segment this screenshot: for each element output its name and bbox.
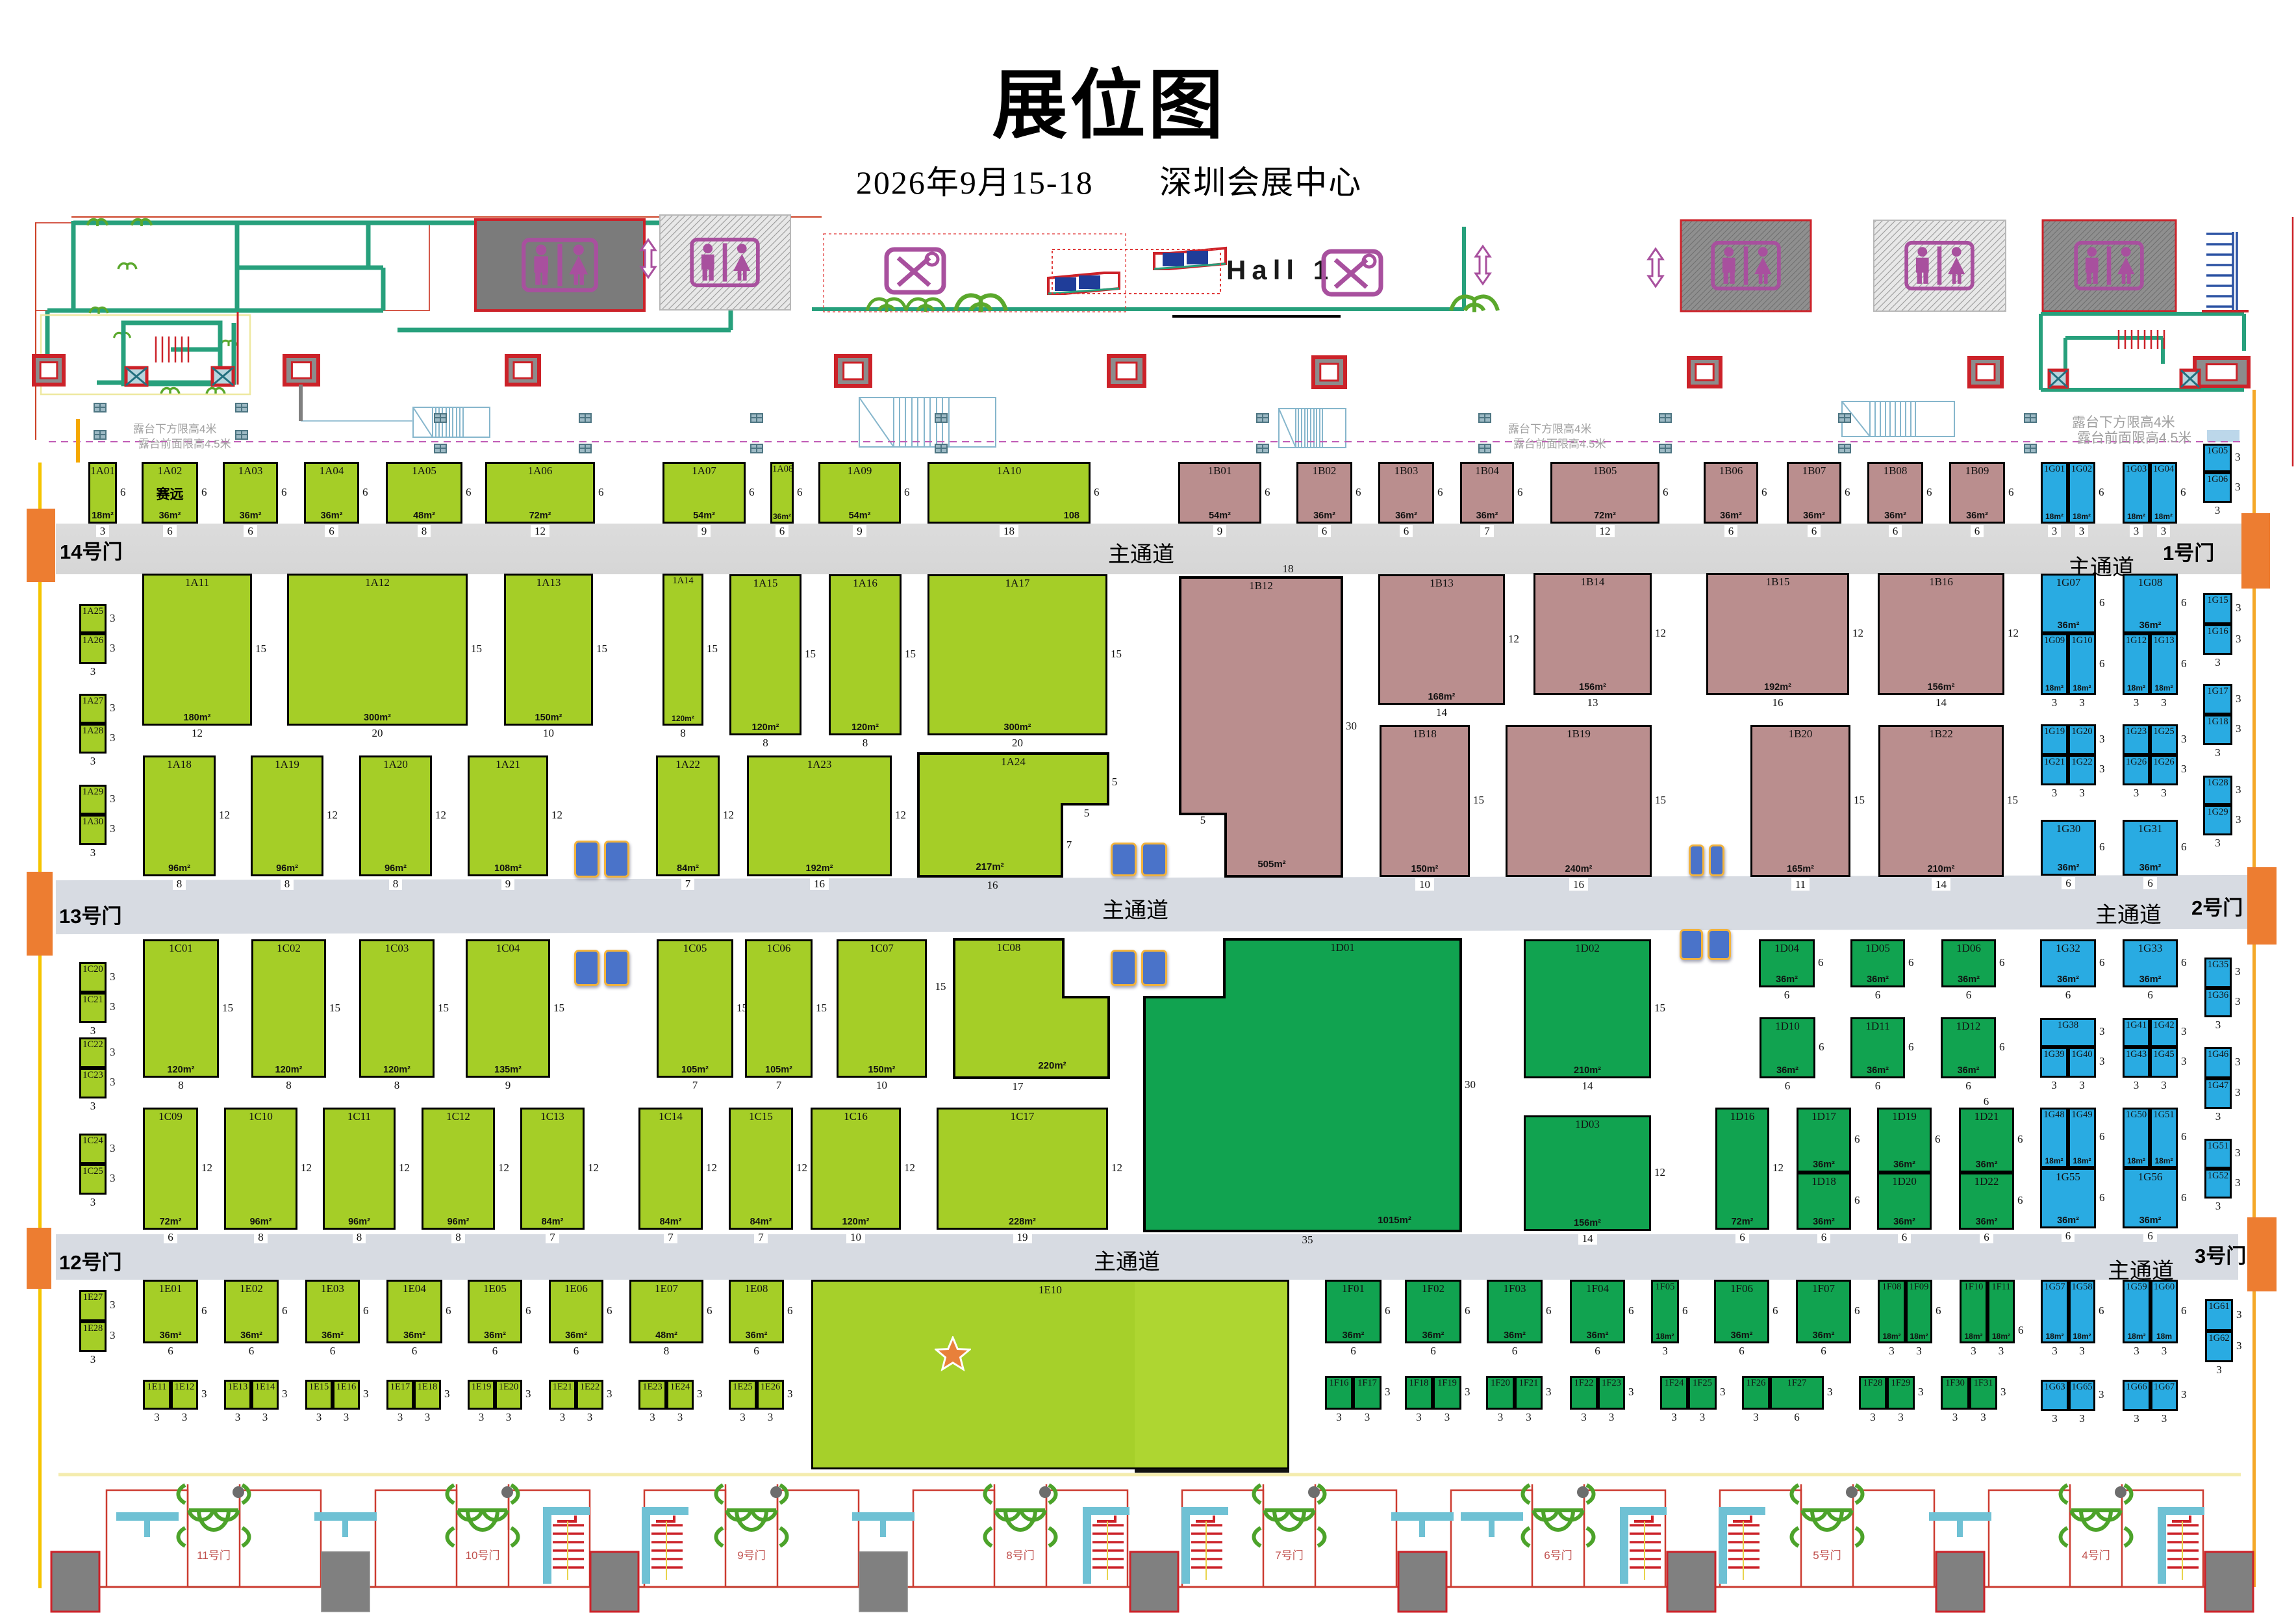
svg-text:10号门: 10号门 (466, 1549, 500, 1562)
svg-text:4号门: 4号门 (2082, 1549, 2110, 1562)
svg-text:9号门: 9号门 (737, 1549, 765, 1562)
svg-text:8号门: 8号门 (1006, 1549, 1034, 1562)
svg-text:6号门: 6号门 (1544, 1549, 1572, 1562)
svg-text:11号门: 11号门 (197, 1549, 231, 1562)
svg-text:7号门: 7号门 (1275, 1549, 1303, 1562)
svg-text:5号门: 5号门 (1813, 1549, 1841, 1562)
